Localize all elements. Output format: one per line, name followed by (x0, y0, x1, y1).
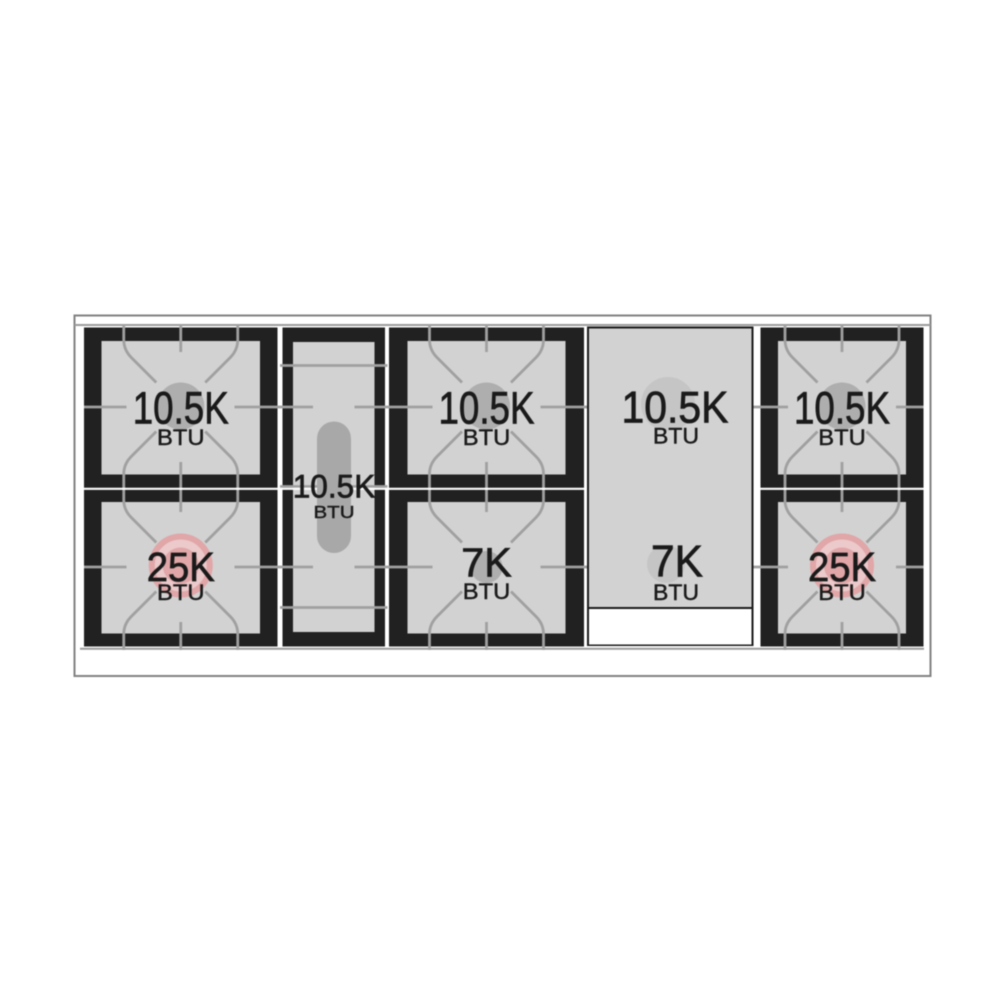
svg-text:BTU: BTU (818, 580, 866, 605)
svg-text:BTU: BTU (818, 425, 866, 450)
svg-text:BTU: BTU (157, 580, 205, 605)
svg-text:BTU: BTU (653, 424, 699, 449)
svg-text:BTU: BTU (157, 425, 205, 450)
svg-text:BTU: BTU (463, 579, 511, 604)
svg-text:BTU: BTU (463, 425, 511, 450)
svg-text:BTU: BTU (314, 502, 355, 522)
svg-text:10.5K: 10.5K (293, 469, 376, 505)
svg-text:BTU: BTU (653, 580, 699, 605)
